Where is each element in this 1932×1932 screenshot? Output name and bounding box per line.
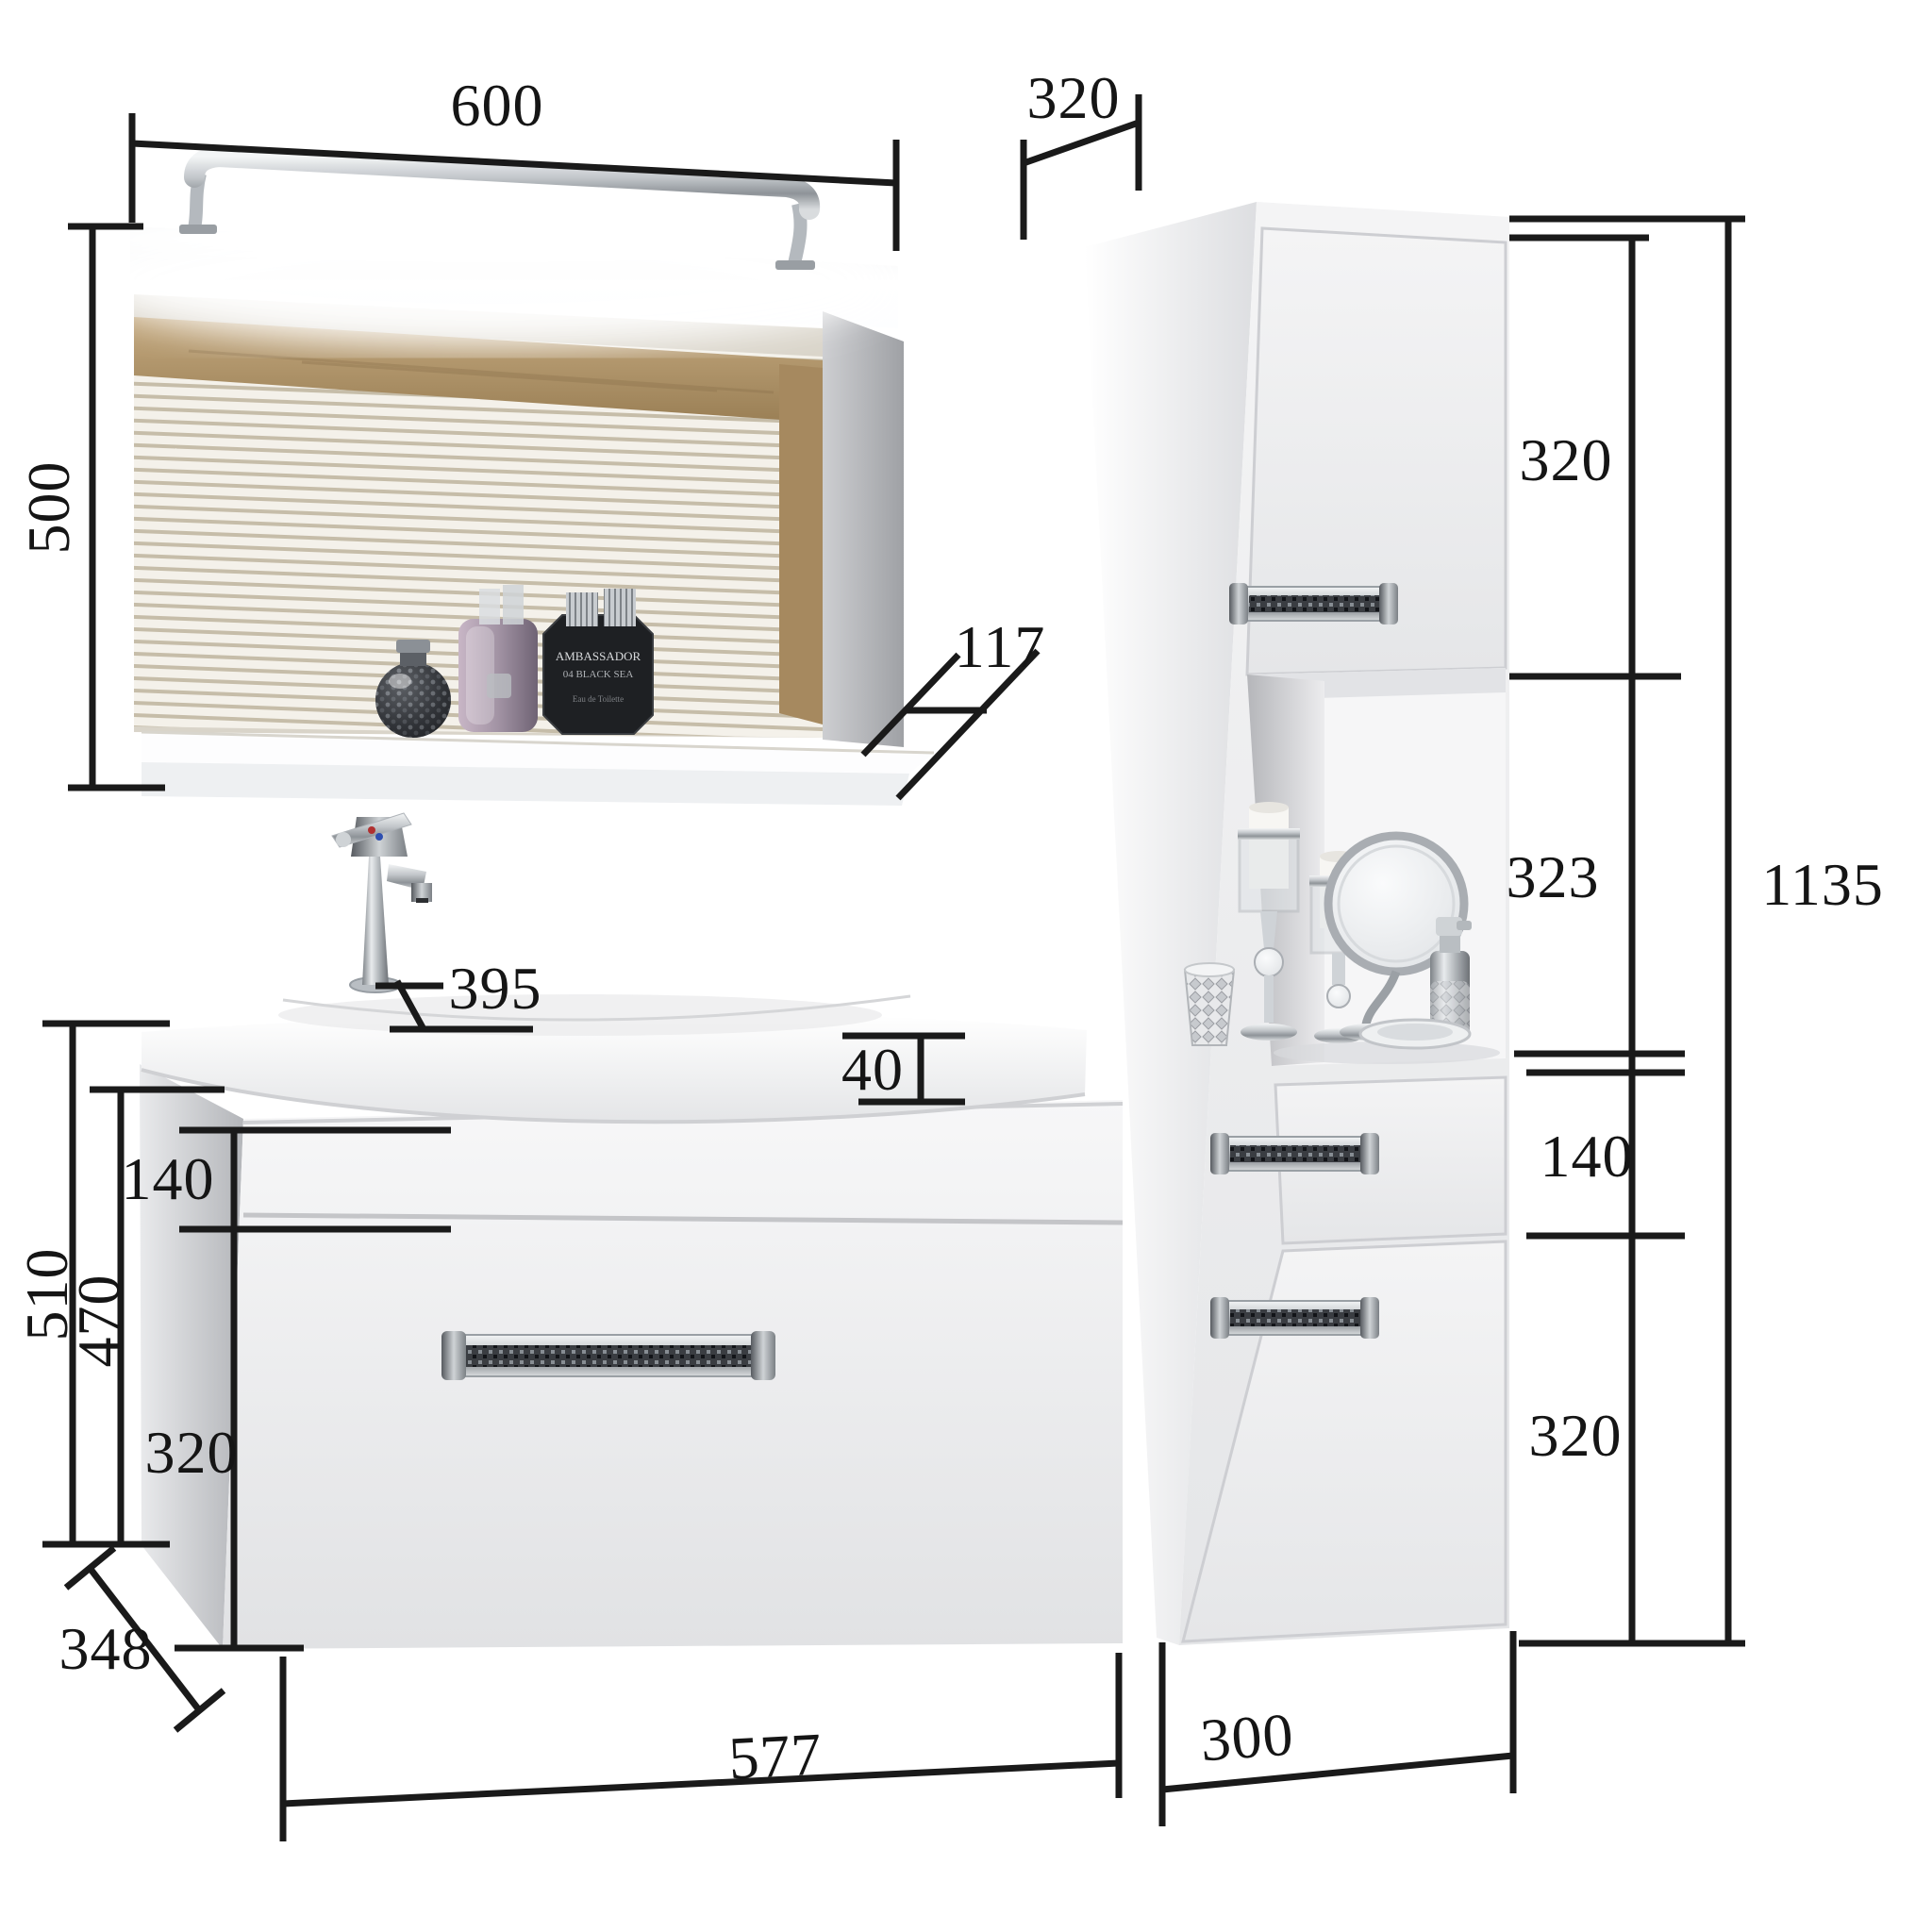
hot-indicator (368, 826, 375, 834)
dim-cabinet-width-label: 300 (1198, 1705, 1295, 1772)
dim-basin-depth-label: 395 (449, 958, 542, 1019)
perfume-brand-text: AMBASSADOR (556, 649, 641, 663)
dim-vanity-width-label: 577 (727, 1724, 824, 1789)
dim-cabinet-top-door-label: 320 (1520, 430, 1613, 491)
dim-vanity-total-height-label: 510 (17, 1248, 77, 1341)
dim-vanity-bottom-drawer-label: 320 (145, 1423, 239, 1483)
textured-vase (1185, 970, 1234, 1045)
dim-shelf-depth-label: 117 (955, 617, 1046, 677)
dim-cabinet-total-height-label: 1135 (1761, 855, 1884, 915)
cold-indicator (375, 833, 383, 841)
diagram-artwork: AMBASSADOR 04 BLACK SEA Eau de Toilette (0, 0, 1932, 1932)
cabinet-drawer-handle (1210, 1133, 1379, 1174)
dim-vanity-top-drawer-label: 140 (122, 1149, 215, 1209)
dim-mirror-height-label: 500 (19, 461, 79, 555)
vanity-drawer-handle (441, 1331, 775, 1380)
cabinet-bottom-door-handle (1210, 1297, 1379, 1339)
mirror-shelf (142, 732, 934, 806)
dim-cabinet-niche-label: 323 (1507, 847, 1600, 908)
perfume-small-text: Eau de Toilette (573, 694, 624, 704)
dim-cabinet-drawer-label: 140 (1541, 1126, 1634, 1187)
dim-basin-thickness-label: 40 (841, 1040, 904, 1100)
dim-cabinet-bottom-door-label: 320 (1529, 1406, 1623, 1466)
dim-cabinet-depth-label: 320 (1027, 68, 1121, 128)
tall-cabinet (1085, 202, 1509, 1645)
dim-mirror-width-label: 600 (451, 75, 544, 136)
dim-vanity-depth-label: 348 (59, 1619, 153, 1679)
faucet (332, 813, 432, 992)
vanity-unit (140, 1064, 1123, 1649)
dimension-diagram: AMBASSADOR 04 BLACK SEA Eau de Toilette (0, 0, 1932, 1932)
perfume-sub-text: 04 BLACK SEA (563, 669, 634, 680)
soap-dish (1360, 1020, 1470, 1048)
cabinet-door-handle (1229, 583, 1398, 625)
